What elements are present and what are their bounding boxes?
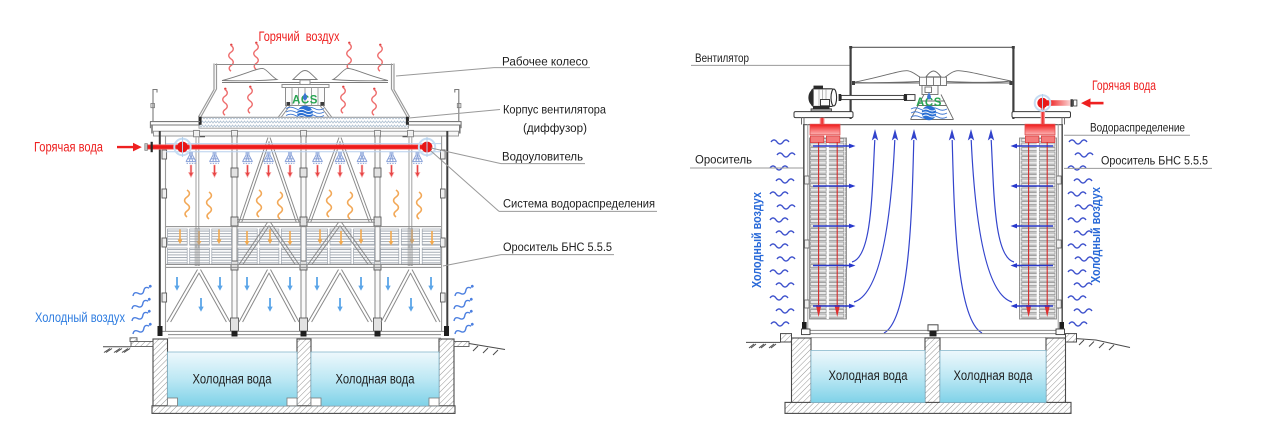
svg-text:Вентилятор: Вентилятор bbox=[695, 51, 749, 65]
svg-text:Корпус вентилятора: Корпус вентилятора bbox=[503, 103, 606, 117]
svg-text:Холодный воздух: Холодный воздух bbox=[750, 192, 764, 288]
svg-text:Система водораспределения: Система водораспределения bbox=[503, 197, 655, 211]
svg-text:(диффузор): (диффузор) bbox=[523, 121, 587, 135]
svg-text:Холодный воздух: Холодный воздух bbox=[1089, 187, 1103, 283]
svg-text:Водораспределение: Водораспределение bbox=[1090, 121, 1185, 135]
svg-text:Горячая вода: Горячая вода bbox=[34, 140, 103, 155]
svg-text:Ороситель БНС 5.5.5: Ороситель БНС 5.5.5 bbox=[503, 240, 612, 254]
svg-text:Холодная вода: Холодная вода bbox=[336, 372, 415, 387]
svg-text:Холодная вода: Холодная вода bbox=[954, 368, 1033, 383]
svg-text:Рабочее колесо: Рабочее колесо bbox=[502, 54, 588, 68]
svg-text:Холодная вода: Холодная вода bbox=[193, 372, 272, 387]
svg-text:Холодный воздух: Холодный воздух bbox=[35, 310, 125, 325]
svg-text:Холодная вода: Холодная вода bbox=[829, 368, 908, 383]
svg-text:Ороситель БНС 5.5.5: Ороситель БНС 5.5.5 bbox=[1101, 153, 1208, 167]
svg-text:Горячий воздух: Горячий воздух bbox=[259, 29, 340, 44]
svg-text:Ороситель: Ороситель bbox=[695, 153, 752, 167]
svg-text:Водоуловитель: Водоуловитель bbox=[502, 150, 583, 164]
svg-text:Горячая вода: Горячая вода bbox=[1092, 78, 1156, 93]
